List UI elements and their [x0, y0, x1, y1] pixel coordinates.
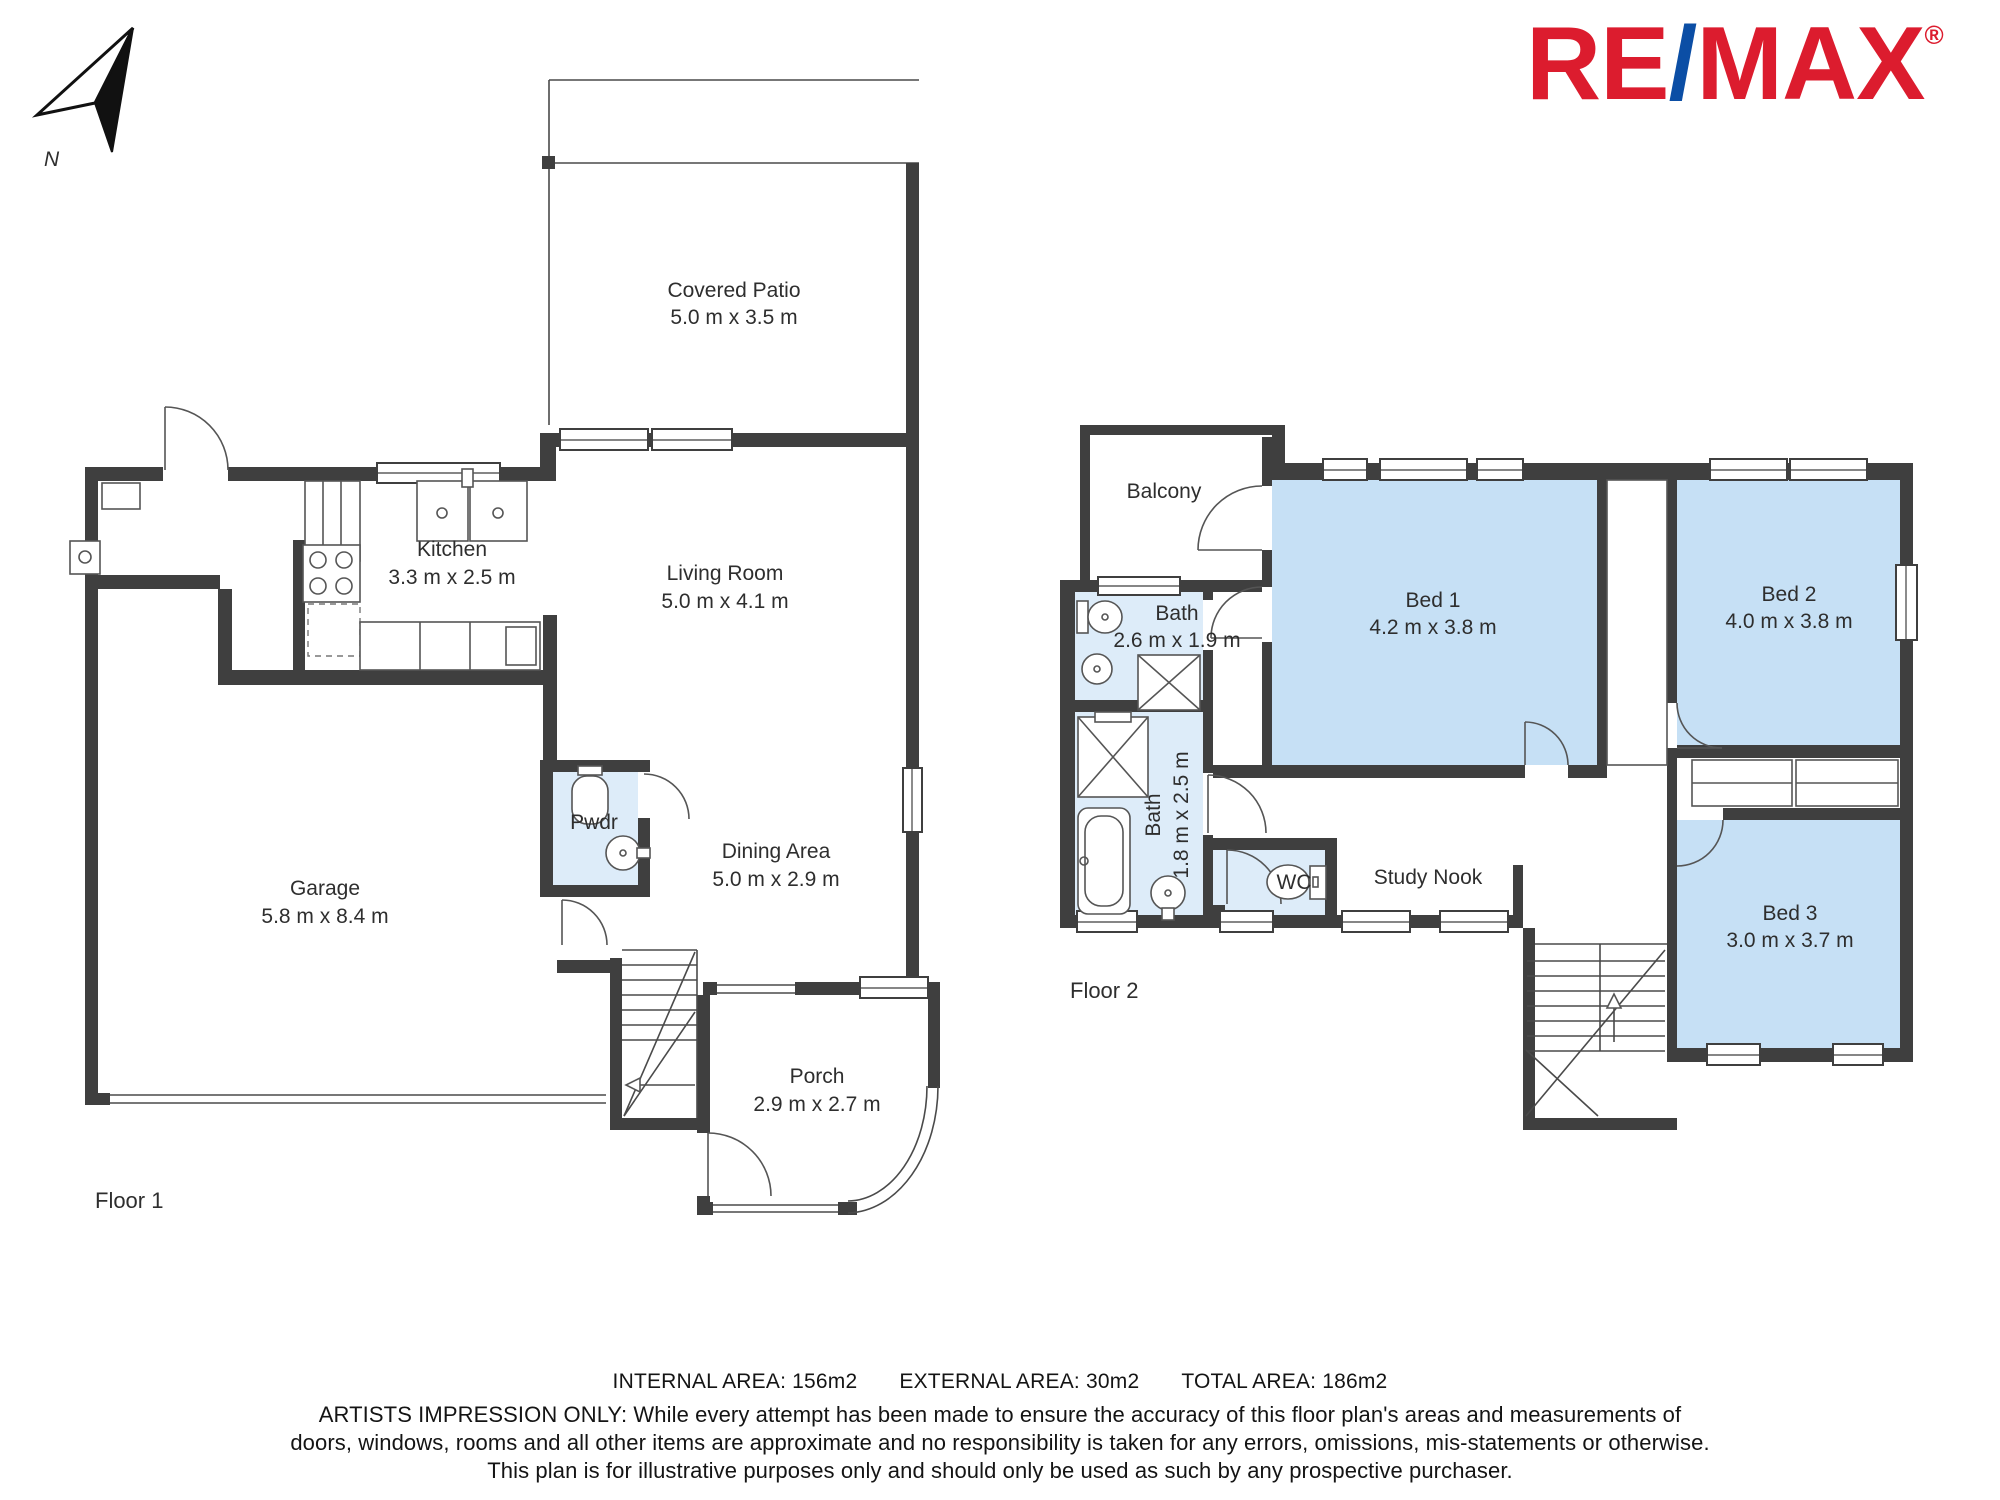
shower-icon — [1138, 655, 1200, 710]
room-label-kitchen: Kitchen — [417, 538, 487, 561]
room-dims-bath-lower: 1.8 m x 2.5 m — [1170, 751, 1193, 878]
room-dims-porch: 2.9 m x 2.7 m — [753, 1093, 880, 1116]
stair-direction-arrow — [1607, 994, 1621, 1008]
room-label-garage: Garage — [290, 877, 360, 900]
internal-area: INTERNAL AREA: 156m2 — [613, 1370, 858, 1393]
window — [1790, 459, 1867, 480]
external-area: EXTERNAL AREA: 30m2 — [899, 1370, 1139, 1393]
floor1-labels: Covered Patio 5.0 m x 3.5 m Kitchen 3.3 … — [95, 279, 881, 1213]
room-label-bed-2: Bed 2 — [1762, 583, 1817, 606]
window — [860, 977, 928, 998]
room-label-bed-1: Bed 1 — [1406, 589, 1461, 612]
room-label-dining-area: Dining Area — [722, 840, 831, 863]
north-label: N — [44, 148, 60, 171]
room-dims-living-room: 5.0 m x 4.1 m — [661, 590, 788, 613]
window — [1477, 459, 1523, 480]
stairs — [1526, 944, 1667, 1116]
footer: INTERNAL AREA: 156m2EXTERNAL AREA: 30m2T… — [0, 1370, 2000, 1485]
room-label-wc: WC — [1277, 871, 1312, 894]
floor1-title: Floor 1 — [95, 1188, 163, 1213]
door-arc — [1208, 775, 1266, 833]
total-area: TOTAL AREA: 186m2 — [1181, 1370, 1387, 1393]
bathtub-icon — [1078, 808, 1130, 914]
utility-fixtures — [70, 483, 140, 574]
area-summary: INTERNAL AREA: 156m2EXTERNAL AREA: 30m2T… — [0, 1370, 2000, 1394]
door-arc — [1198, 486, 1262, 550]
room-label-living-room: Living Room — [667, 562, 784, 585]
stair-direction-arrow — [626, 1078, 640, 1092]
room-label-porch: Porch — [790, 1065, 845, 1088]
floor1-walls — [85, 163, 940, 1215]
room-dims-bed-3: 3.0 m x 3.7 m — [1726, 929, 1853, 952]
window — [1342, 911, 1410, 932]
window — [377, 463, 500, 483]
door-arc — [644, 774, 689, 819]
room-label-bed-3: Bed 3 — [1763, 902, 1818, 925]
room-dims-bed-1: 4.2 m x 3.8 m — [1369, 616, 1496, 639]
garage-door — [110, 1095, 606, 1103]
disclaimer-line-3: This plan is for illustrative purposes o… — [0, 1457, 2000, 1485]
floor2-plan: Balcony Bath 2.6 m x 1.9 m Bed 1 4.2 m x… — [1060, 425, 1917, 1130]
window — [1380, 459, 1467, 480]
stairs — [622, 950, 697, 1118]
window — [903, 768, 922, 832]
room-dims-garage: 5.8 m x 8.4 m — [261, 905, 388, 928]
room-dims-kitchen: 3.3 m x 2.5 m — [388, 566, 515, 589]
window — [1220, 911, 1273, 932]
floor2-title: Floor 2 — [1070, 978, 1138, 1003]
room-label-covered-patio: Covered Patio — [667, 279, 800, 302]
logo-slash: / — [1668, 6, 1696, 122]
window — [1896, 565, 1917, 640]
window — [1098, 577, 1180, 595]
svg-text:Bath: Bath — [1142, 793, 1165, 836]
meter-box — [102, 483, 140, 509]
floor-plan-page: N — [0, 0, 2000, 1500]
window — [1323, 459, 1367, 480]
logo-re: RE — [1526, 6, 1668, 122]
window — [1710, 459, 1787, 480]
remax-logo: RE/MAX® — [1526, 20, 1943, 112]
floor-plan-drawing: N — [0, 0, 2000, 1500]
covered-patio-outline — [542, 80, 919, 425]
room-label-bath-upper: Bath — [1155, 602, 1198, 625]
registered-mark: ® — [1925, 20, 1943, 50]
north-arrow-icon: N — [37, 28, 133, 171]
room-dims-bath-upper: 2.6 m x 1.9 m — [1113, 629, 1240, 652]
shower-icon — [1078, 712, 1148, 797]
logo-max: MAX — [1696, 6, 1924, 122]
room-dims-dining-area: 5.0 m x 2.9 m — [712, 868, 839, 891]
window — [1833, 1044, 1883, 1065]
room-label-study-nook: Study Nook — [1374, 866, 1483, 889]
door-arc — [708, 1133, 771, 1196]
laundry-tub-icon — [70, 541, 100, 574]
stove-icon — [303, 545, 360, 602]
room-label-balcony: Balcony — [1127, 480, 1202, 503]
window — [560, 429, 648, 450]
counter — [360, 622, 540, 670]
door-arc — [165, 407, 228, 470]
room-label-pwdr: Pwdr — [570, 811, 618, 834]
window — [652, 429, 732, 450]
window — [1440, 911, 1508, 932]
window — [1707, 1044, 1760, 1065]
fridge-space — [308, 604, 360, 656]
room-dims-bed-2: 4.0 m x 3.8 m — [1725, 610, 1852, 633]
disclaimer-line-1: ARTISTS IMPRESSION ONLY: While every att… — [0, 1401, 2000, 1429]
room-dims-covered-patio: 5.0 m x 3.5 m — [670, 306, 797, 329]
basin-icon — [1082, 654, 1112, 684]
disclaimer-line-2: doors, windows, rooms and all other item… — [0, 1429, 2000, 1457]
door-arc — [562, 900, 607, 945]
floor1-plan: Covered Patio 5.0 m x 3.5 m Kitchen 3.3 … — [70, 80, 940, 1215]
